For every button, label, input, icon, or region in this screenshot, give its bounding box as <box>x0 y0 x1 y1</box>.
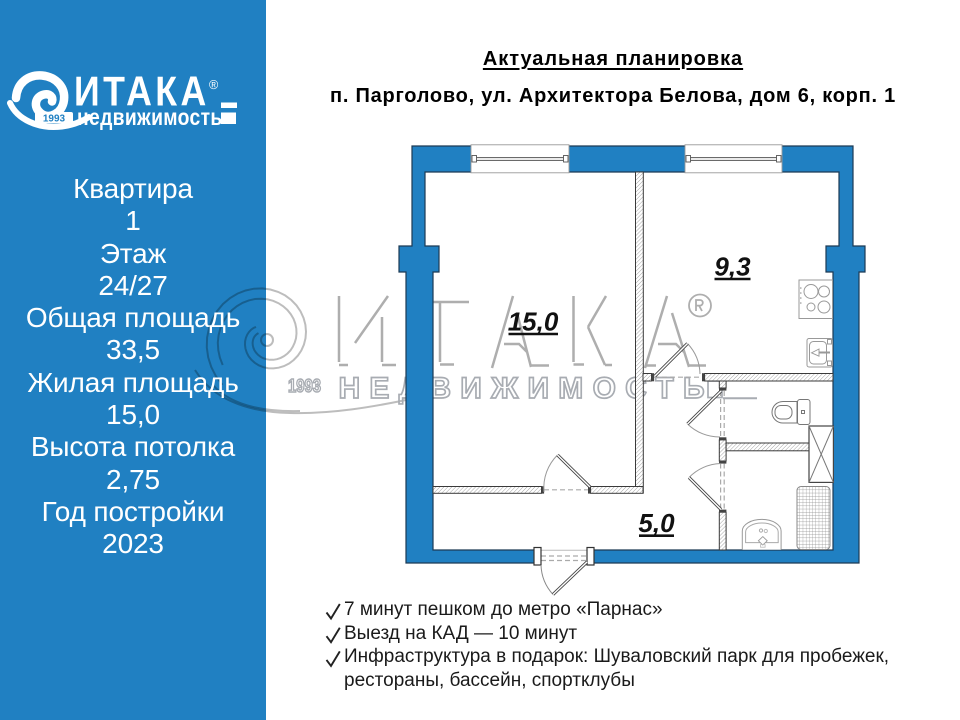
svg-text:15,0: 15,0 <box>508 307 559 337</box>
svg-text:1993: 1993 <box>288 376 321 396</box>
svg-text:недвижимость: недвижимость <box>77 106 223 131</box>
svg-text:9,3: 9,3 <box>714 252 751 282</box>
svg-text:1993: 1993 <box>43 114 66 125</box>
svg-text:5,0: 5,0 <box>638 508 675 538</box>
svg-text:®: ® <box>209 78 219 92</box>
